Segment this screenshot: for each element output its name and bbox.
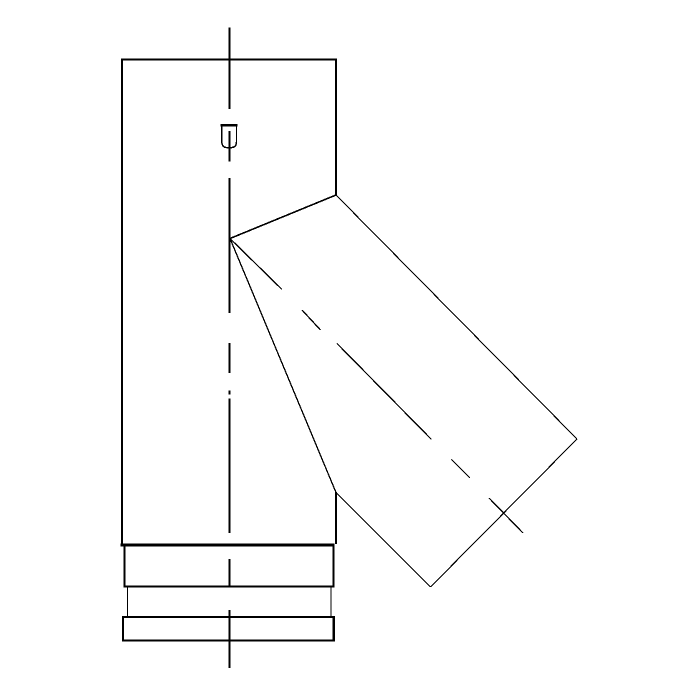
branch-axis-centerline <box>489 498 523 533</box>
branch-axis-centerline <box>230 239 282 290</box>
drawing-page <box>0 0 700 700</box>
branch-bottom-edge <box>336 493 431 588</box>
branch-top-edge <box>336 195 577 439</box>
branch-axis-centerline <box>452 460 471 479</box>
technical-drawing <box>0 0 700 700</box>
branch-axis-centerline <box>302 310 321 330</box>
end-ring-outline <box>123 617 334 641</box>
branch-saddle-miter-line <box>230 195 336 239</box>
branch-root-edge <box>230 239 336 493</box>
branch-axis-centerline <box>337 344 432 440</box>
